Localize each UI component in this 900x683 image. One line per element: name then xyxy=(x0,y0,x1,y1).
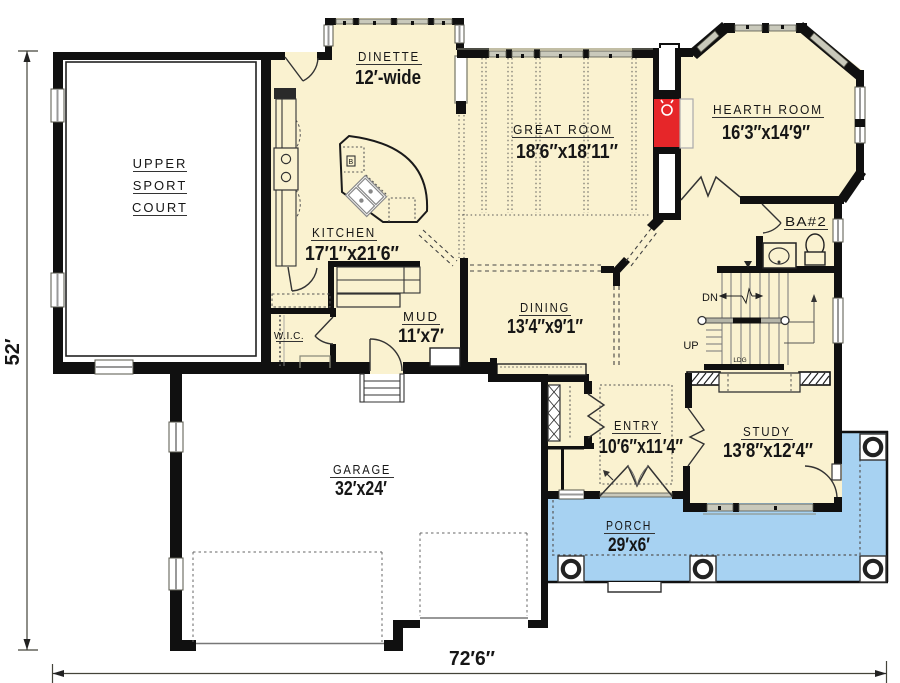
svg-text:SPORT: SPORT xyxy=(133,178,188,193)
svg-text:11′x7′: 11′x7′ xyxy=(398,326,444,347)
svg-text:LDG: LDG xyxy=(733,357,746,364)
svg-text:13′4″x9′1″: 13′4″x9′1″ xyxy=(507,316,583,338)
svg-text:13′8″x12′4″: 13′8″x12′4″ xyxy=(723,440,813,462)
svg-text:GREAT ROOM: GREAT ROOM xyxy=(513,122,613,137)
svg-text:52′: 52′ xyxy=(2,338,24,365)
svg-text:UP: UP xyxy=(683,340,698,352)
svg-text:DINING: DINING xyxy=(520,300,570,315)
svg-text:B: B xyxy=(349,159,354,166)
svg-text:MUD: MUD xyxy=(403,309,439,324)
svg-text:UPPER: UPPER xyxy=(133,156,188,171)
svg-text:10′6″x11′4″: 10′6″x11′4″ xyxy=(599,436,683,458)
svg-text:29′x6′: 29′x6′ xyxy=(608,535,650,556)
svg-text:DN: DN xyxy=(702,292,718,304)
svg-text:PORCH: PORCH xyxy=(606,518,652,533)
svg-text:32′x24′: 32′x24′ xyxy=(335,478,387,500)
svg-text:W.I.C.: W.I.C. xyxy=(274,331,304,342)
svg-text:ENTRY: ENTRY xyxy=(614,418,660,433)
svg-text:COURT: COURT xyxy=(132,200,188,215)
svg-text:BA#2: BA#2 xyxy=(785,214,827,229)
svg-text:GARAGE: GARAGE xyxy=(333,462,391,477)
svg-text:STUDY: STUDY xyxy=(743,424,791,439)
svg-text:DINETTE: DINETTE xyxy=(358,49,420,64)
svg-text:KITCHEN: KITCHEN xyxy=(312,225,376,240)
svg-text:HEARTH ROOM: HEARTH ROOM xyxy=(713,102,823,117)
svg-text:16′3″x14′9″: 16′3″x14′9″ xyxy=(722,122,810,144)
svg-text:17′1″x21′6″: 17′1″x21′6″ xyxy=(305,243,399,265)
svg-text:18′6″x18′11″: 18′6″x18′11″ xyxy=(516,141,618,163)
svg-text:72′6″: 72′6″ xyxy=(449,648,495,670)
svg-text:12′-wide: 12′-wide xyxy=(355,67,421,89)
